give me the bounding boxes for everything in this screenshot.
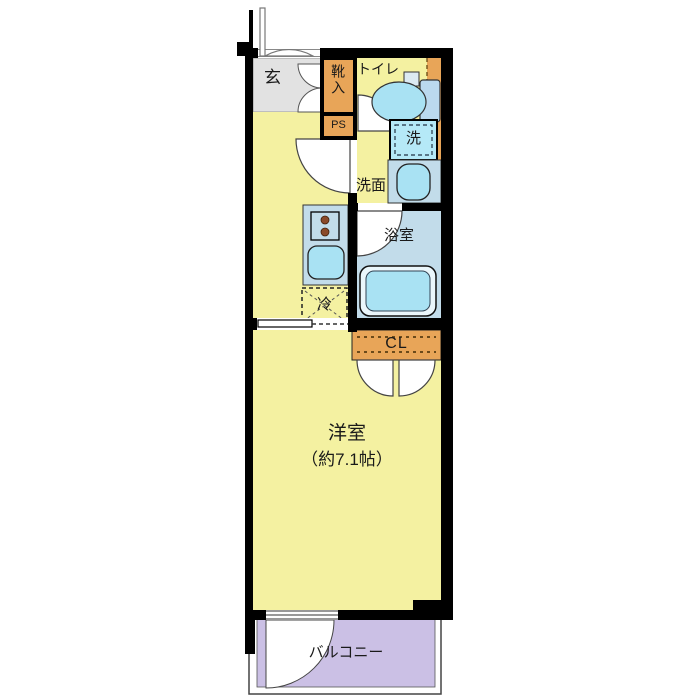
floor-plan-drawing bbox=[0, 0, 700, 700]
kitchen-sink bbox=[308, 246, 344, 279]
entrance-label: 玄 bbox=[264, 68, 281, 88]
stove-burner-2 bbox=[321, 228, 329, 236]
wall-room-stub-left bbox=[245, 318, 257, 330]
main-room-size-label: （約7.1帖） bbox=[253, 450, 441, 470]
bathtub-inner bbox=[366, 271, 430, 311]
main-room-label: 洋室 bbox=[253, 423, 441, 445]
sliding-door-leaf bbox=[258, 320, 312, 327]
balcony-wall-stub bbox=[245, 616, 255, 654]
washing-machine-label: 洗 bbox=[390, 130, 437, 147]
toilet-bowl bbox=[372, 82, 426, 122]
toilet-label: トイレ bbox=[357, 61, 399, 77]
vanity-basin bbox=[397, 164, 430, 200]
closet-label: CL bbox=[352, 335, 441, 353]
bathroom-label: 浴室 bbox=[384, 227, 414, 244]
washroom-label: 洗面 bbox=[356, 177, 386, 194]
wall-hall-divider bbox=[348, 193, 357, 332]
wall-bath-stub-right bbox=[402, 203, 441, 211]
wall-bath-stub-left bbox=[348, 203, 358, 211]
refrigerator-label: 冷 bbox=[302, 296, 347, 313]
pipe-space-label: PS bbox=[324, 119, 353, 132]
stove-burner-1 bbox=[321, 216, 329, 224]
floor-plan-canvas: 玄 靴入 PS トイレ 洗 洗面 浴室 冷 CL 洋室 （約7.1帖） バルコニ… bbox=[0, 0, 700, 700]
wall-left bbox=[245, 48, 253, 620]
entrance-door-leaf bbox=[260, 8, 265, 56]
pillar bbox=[413, 600, 445, 620]
wall-room-right bbox=[348, 318, 441, 330]
wall-right bbox=[441, 48, 453, 620]
balcony-label: バルコニー bbox=[257, 644, 435, 661]
shoe-cabinet-label: 靴入 bbox=[330, 64, 346, 96]
